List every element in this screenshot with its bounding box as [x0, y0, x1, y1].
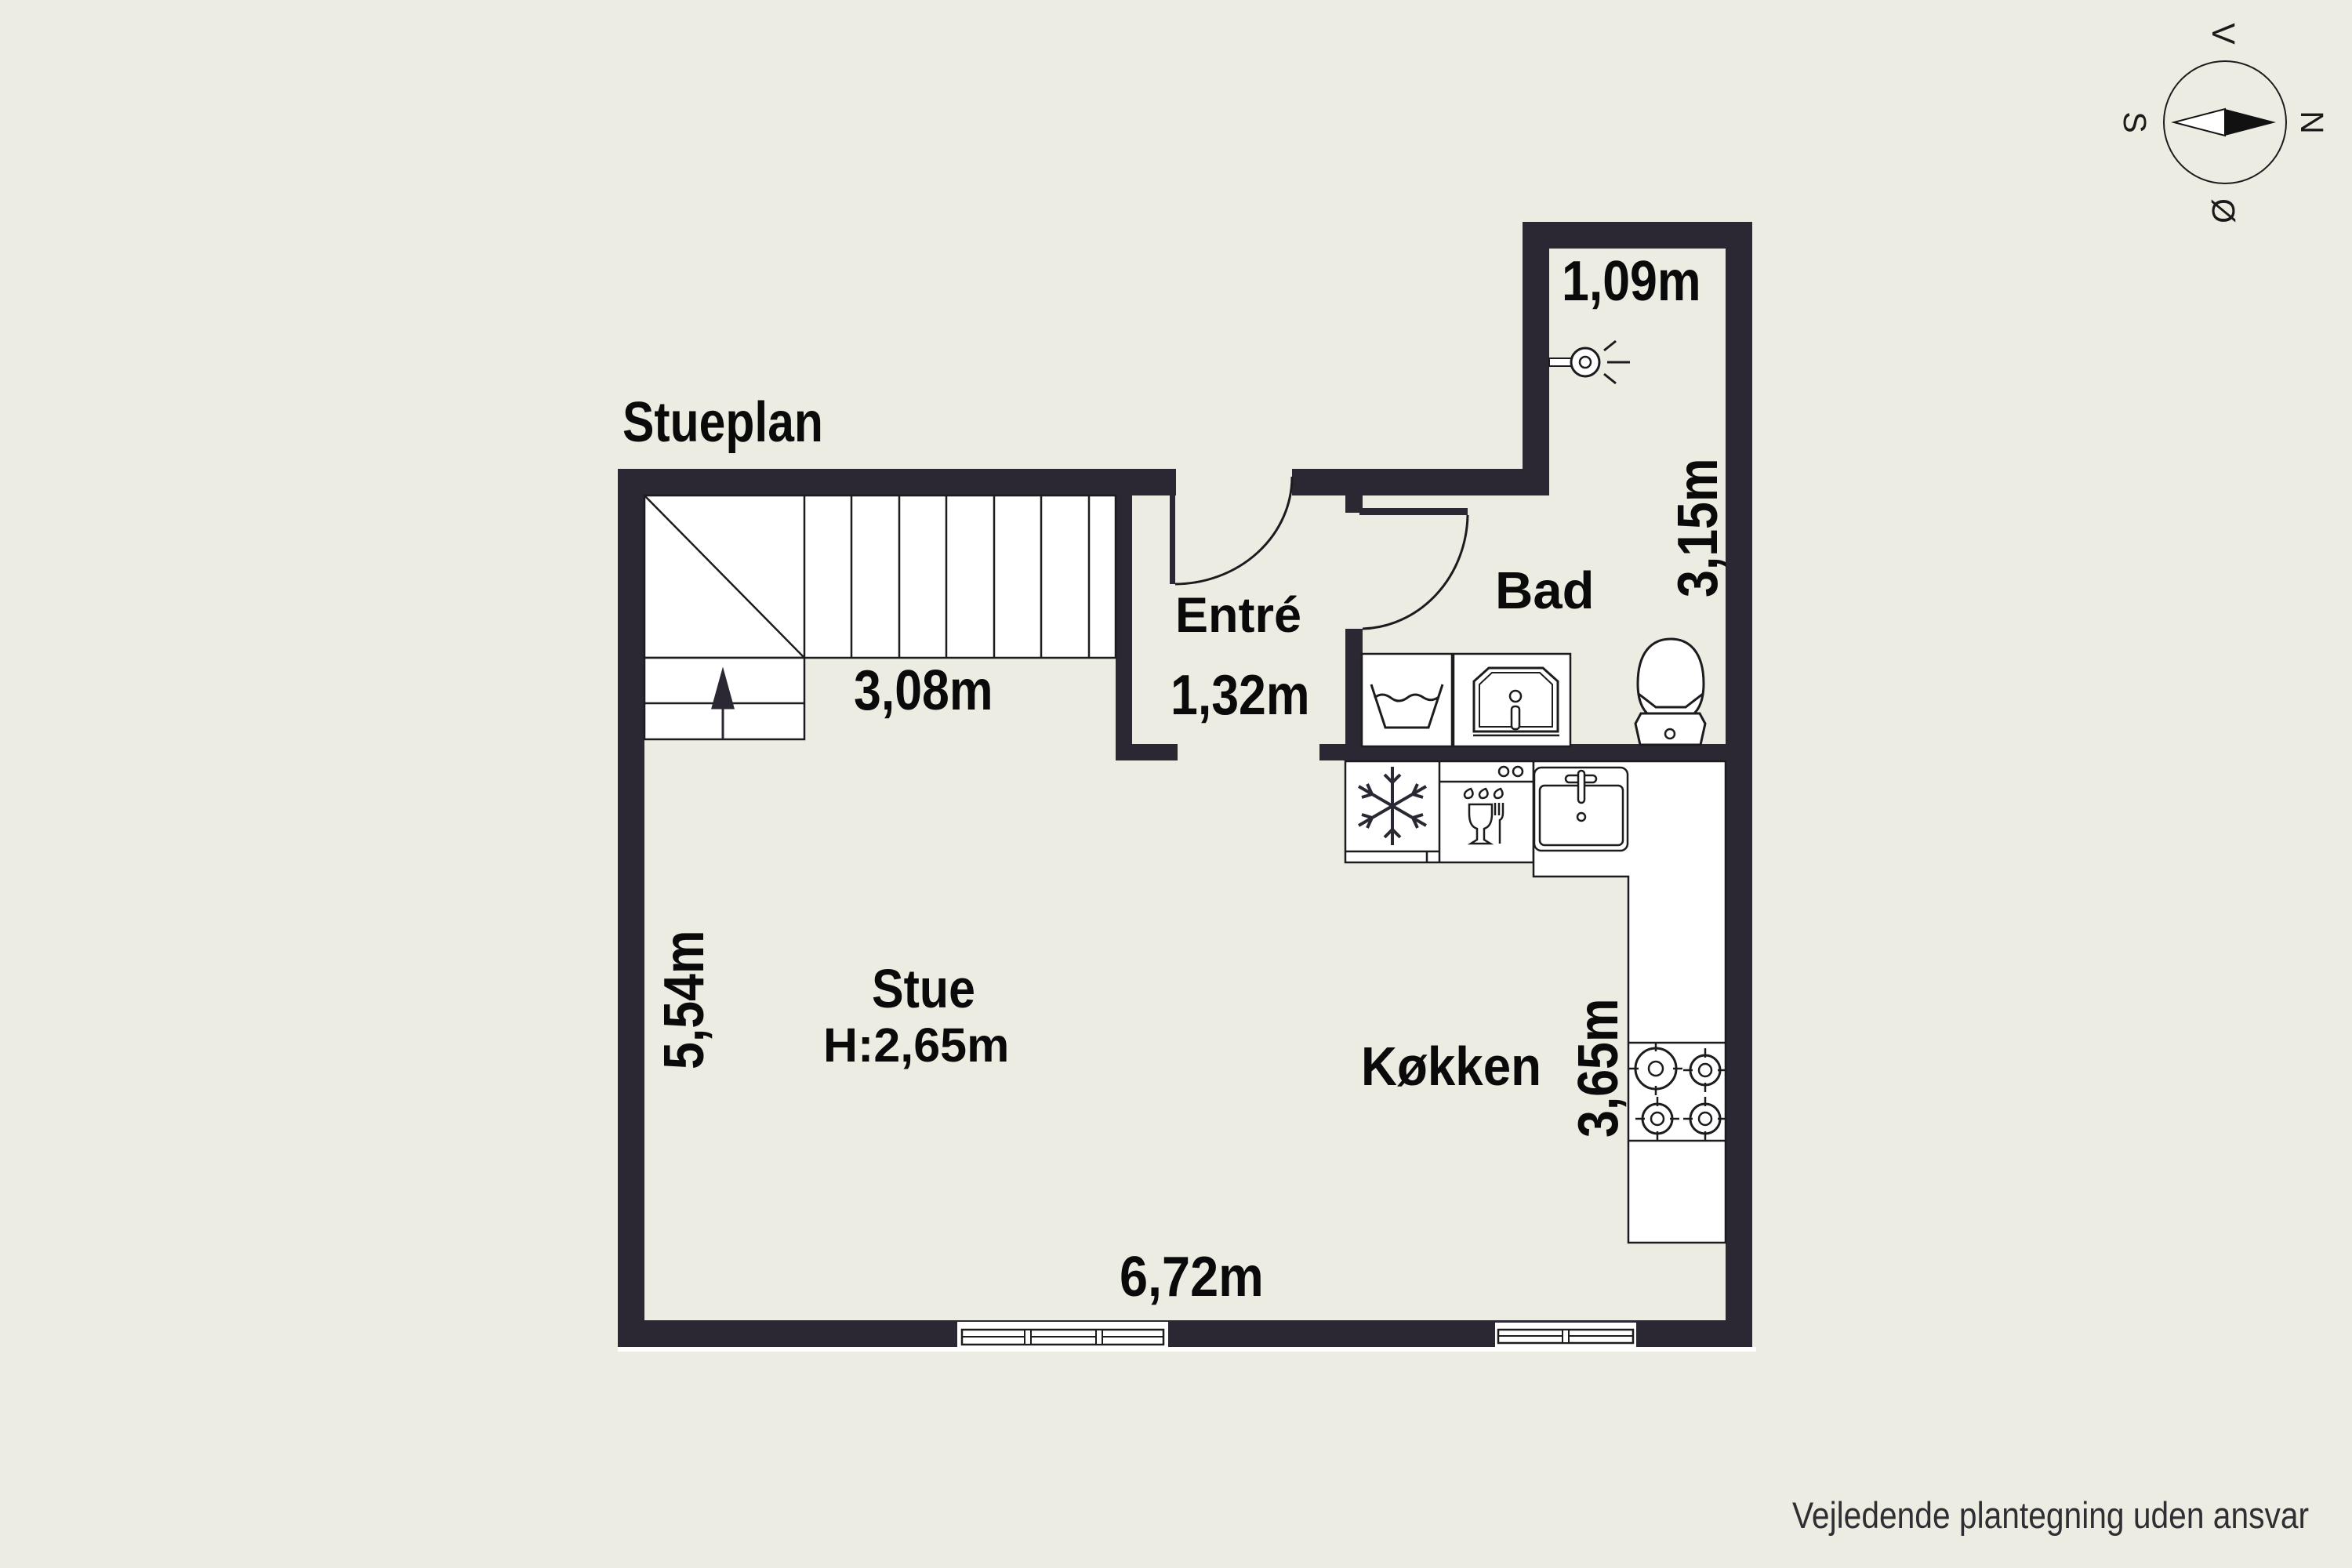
svg-text:H:2,65m: H:2,65m — [823, 1018, 1009, 1072]
svg-text:Bad: Bad — [1495, 561, 1595, 620]
svg-text:Stueplan: Stueplan — [622, 391, 823, 454]
svg-text:N: N — [2294, 111, 2330, 134]
svg-text:5,54m: 5,54m — [653, 930, 716, 1069]
svg-text:Køkken: Køkken — [1361, 1036, 1541, 1097]
svg-text:1,32m: 1,32m — [1171, 664, 1310, 727]
svg-text:3,15m: 3,15m — [1667, 458, 1730, 597]
svg-text:S: S — [2117, 111, 2153, 132]
svg-text:Stue: Stue — [872, 958, 975, 1019]
svg-text:3,65m: 3,65m — [1567, 998, 1630, 1138]
svg-text:3,08m: 3,08m — [854, 659, 993, 722]
svg-text:Ø: Ø — [2205, 198, 2241, 223]
svg-text:V: V — [2205, 23, 2241, 45]
svg-text:1,09m: 1,09m — [1562, 250, 1701, 313]
svg-text:Vejledende plantegning uden an: Vejledende plantegning uden ansvar — [1792, 1495, 2309, 1536]
svg-text:6,72m: 6,72m — [1120, 1245, 1264, 1308]
svg-text:Entré: Entré — [1175, 588, 1301, 643]
